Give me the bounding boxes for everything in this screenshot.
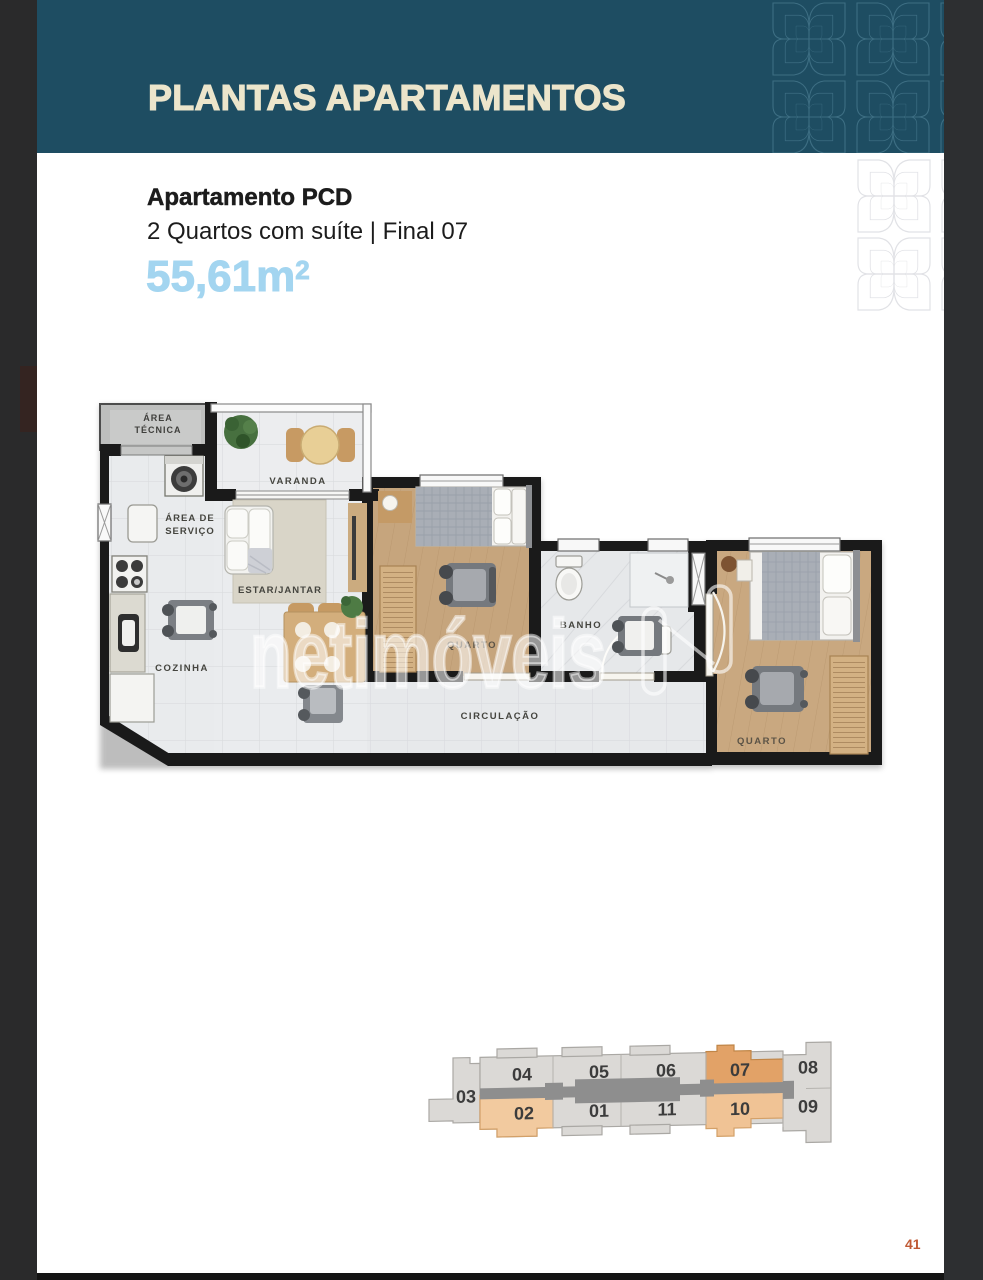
svg-text:VARANDA: VARANDA bbox=[269, 476, 326, 487]
svg-text:09: 09 bbox=[798, 1096, 818, 1116]
svg-text:02: 02 bbox=[514, 1103, 534, 1123]
svg-text:COZINHA: COZINHA bbox=[155, 663, 209, 674]
svg-text:ÁREA: ÁREA bbox=[143, 413, 173, 423]
svg-text:05: 05 bbox=[589, 1062, 609, 1082]
svg-text:netimóveis: netimóveis bbox=[250, 601, 606, 708]
svg-text:08: 08 bbox=[798, 1057, 818, 1077]
svg-text:01: 01 bbox=[589, 1101, 609, 1121]
svg-text:11: 11 bbox=[657, 1099, 676, 1119]
svg-text:04: 04 bbox=[512, 1064, 532, 1084]
svg-text:10: 10 bbox=[730, 1099, 750, 1119]
svg-text:07: 07 bbox=[730, 1060, 750, 1080]
svg-text:TÉCNICA: TÉCNICA bbox=[135, 425, 182, 435]
svg-text:ESTAR/JANTAR: ESTAR/JANTAR bbox=[238, 585, 322, 596]
svg-text:06: 06 bbox=[656, 1060, 676, 1080]
svg-text:CIRCULAÇÃO: CIRCULAÇÃO bbox=[461, 711, 540, 722]
svg-text:03: 03 bbox=[456, 1086, 476, 1106]
svg-text:QUARTO: QUARTO bbox=[737, 736, 787, 747]
svg-text:SERVIÇO: SERVIÇO bbox=[165, 526, 215, 537]
svg-text:ÁREA DE: ÁREA DE bbox=[165, 513, 214, 524]
